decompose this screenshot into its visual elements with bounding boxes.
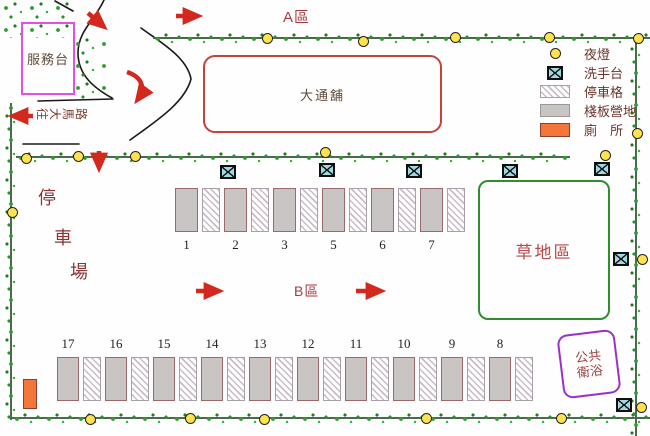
wash-station-icon xyxy=(616,398,632,412)
parking-lot-label-char: 場 xyxy=(70,258,88,284)
parking-slot xyxy=(447,188,465,232)
night-light xyxy=(637,254,648,265)
campsite-number: 12 xyxy=(302,336,315,351)
legend-label: 夜燈 xyxy=(584,44,610,63)
public-bath-label-line2: 衛浴 xyxy=(576,362,604,380)
parking-slot xyxy=(371,357,389,401)
campsite: 6 xyxy=(371,188,394,253)
legend-label: 廁 所 xyxy=(584,120,623,139)
legend-row-night-light: 夜燈 xyxy=(538,46,636,61)
parking-lot-label-char: 車 xyxy=(54,224,72,250)
zone-a-label: A區 xyxy=(283,6,310,27)
pallet-campsite-icon xyxy=(540,104,570,117)
campsite-number: 14 xyxy=(206,336,219,351)
parking-slot xyxy=(179,357,197,401)
campsite-number: 11 xyxy=(350,336,363,351)
campsite: 15 xyxy=(153,336,175,401)
campsite-number: 9 xyxy=(449,336,456,351)
campsite: 8 xyxy=(489,336,511,401)
parking-slot xyxy=(83,357,101,401)
hedge-top xyxy=(153,31,650,46)
campsite: 9 xyxy=(441,336,463,401)
parking-slot xyxy=(300,188,318,232)
bunkhouse-label: 大通舖 xyxy=(300,85,345,104)
tree-cluster-service xyxy=(72,36,106,104)
night-light xyxy=(185,413,196,424)
parking-slot xyxy=(202,188,220,232)
parking-slot xyxy=(251,188,269,232)
night-light xyxy=(636,402,647,413)
hedge-bottom xyxy=(12,411,650,426)
campsite-number: 10 xyxy=(398,336,411,351)
campsite-number: 6 xyxy=(379,237,386,253)
campsite-pad xyxy=(393,357,415,401)
legend-row-pallet-campsite: 棧板營地 xyxy=(538,103,636,118)
campsite-pad xyxy=(322,188,345,232)
arrow-entrance-southeast xyxy=(88,13,103,26)
night-light-icon xyxy=(550,48,561,59)
wash-station-icon xyxy=(613,252,629,266)
toilet-block xyxy=(23,379,37,409)
wash-station-icon xyxy=(594,162,610,176)
legend-label: 停車格 xyxy=(584,82,623,101)
campsite-pad xyxy=(249,357,271,401)
wash-station-icon xyxy=(406,164,422,178)
campsite-number: 1 xyxy=(183,237,190,253)
night-light xyxy=(556,413,567,424)
parking-lot-label-char: 停 xyxy=(38,184,56,210)
night-light xyxy=(7,207,18,218)
campsite-number: 15 xyxy=(158,336,171,351)
night-light xyxy=(259,414,270,425)
campsite-pad xyxy=(224,188,247,232)
campsite-pad xyxy=(297,357,319,401)
service-desk-area: 服務台 xyxy=(21,22,75,95)
legend-row-toilet: 廁 所 xyxy=(538,122,636,137)
parking-slot xyxy=(323,357,341,401)
night-light xyxy=(320,147,331,158)
campsite: 5 xyxy=(322,188,345,253)
night-light xyxy=(130,151,141,162)
campsite: 13 xyxy=(249,336,271,401)
grass-area-label: 草地區 xyxy=(516,238,573,263)
campsite-pad xyxy=(420,188,443,232)
campsite-number: 5 xyxy=(330,237,337,253)
campsite-number: 2 xyxy=(232,237,239,253)
night-light xyxy=(600,150,611,161)
night-light xyxy=(262,33,273,44)
campsite: 16 xyxy=(105,336,127,401)
parking-slot xyxy=(515,357,533,401)
campsite-pad xyxy=(371,188,394,232)
campsite-pad xyxy=(441,357,463,401)
exit-main-road-label: 往大馬路 xyxy=(36,106,88,123)
legend-label: 洗手台 xyxy=(584,63,623,82)
parking-slot xyxy=(349,188,367,232)
campsite-number: 8 xyxy=(497,336,504,351)
night-light xyxy=(450,32,461,43)
campsite-pad xyxy=(345,357,367,401)
campsite-number: 7 xyxy=(428,237,435,253)
night-light xyxy=(73,151,84,162)
campsite-number: 17 xyxy=(62,336,75,351)
parking-slot xyxy=(227,357,245,401)
south-campsite-row: 17 16 15 14 13 12 11 10 9 8 xyxy=(57,336,533,401)
night-light xyxy=(633,33,644,44)
campsite-number: 3 xyxy=(281,237,288,253)
campsite: 11 xyxy=(345,336,367,401)
map-legend: 夜燈 洗手台 停車格 棧板營地 廁 所 xyxy=(538,46,636,137)
campsite-pad xyxy=(105,357,127,401)
campground-map: 服務台 大通舖 草地區 公共 衛浴 A區 B區 停 車 場 往大馬路 xyxy=(0,0,650,436)
campsite: 14 xyxy=(201,336,223,401)
campsite-pad xyxy=(201,357,223,401)
wash-station-icon xyxy=(319,163,335,177)
public-bath-area: 公共 衛浴 xyxy=(556,329,621,400)
zone-b-campsite-row: 1 2 3 5 6 7 xyxy=(175,188,465,253)
night-light xyxy=(358,36,369,47)
night-light xyxy=(544,32,555,43)
night-light xyxy=(85,414,96,425)
campsite-number: 13 xyxy=(254,336,267,351)
wash-station-icon xyxy=(502,164,518,178)
wash-station-icon xyxy=(220,165,236,179)
campsite-pad xyxy=(57,357,79,401)
campsite: 17 xyxy=(57,336,79,401)
legend-row-parking-slot: 停車格 xyxy=(538,84,636,99)
wash-station-icon xyxy=(547,66,563,80)
campsite: 7 xyxy=(420,188,443,253)
night-light xyxy=(421,413,432,424)
campsite-number: 16 xyxy=(110,336,123,351)
campsite-pad xyxy=(273,188,296,232)
campsite: 2 xyxy=(224,188,247,253)
zone-b-label: B區 xyxy=(294,281,319,301)
campsite-pad xyxy=(153,357,175,401)
parking-slot xyxy=(419,357,437,401)
service-desk-label: 服務台 xyxy=(27,49,69,68)
toilet-icon xyxy=(540,123,570,137)
legend-label: 棧板營地 xyxy=(584,101,636,120)
parking-slot-icon xyxy=(540,85,570,98)
parking-slot xyxy=(275,357,293,401)
hedge-left xyxy=(3,103,19,420)
bunkhouse-area: 大通舖 xyxy=(203,55,442,133)
hedge-middle xyxy=(16,150,570,165)
parking-slot xyxy=(398,188,416,232)
grass-area: 草地區 xyxy=(478,180,610,320)
campsite: 12 xyxy=(297,336,319,401)
campsite-pad xyxy=(489,357,511,401)
night-light xyxy=(21,153,32,164)
campsite: 3 xyxy=(273,188,296,253)
campsite: 10 xyxy=(393,336,415,401)
legend-row-wash-station: 洗手台 xyxy=(538,65,636,80)
campsite-pad xyxy=(175,188,198,232)
parking-slot xyxy=(131,357,149,401)
parking-slot xyxy=(467,357,485,401)
arrow-curve-down xyxy=(127,72,142,99)
campsite: 1 xyxy=(175,188,198,253)
